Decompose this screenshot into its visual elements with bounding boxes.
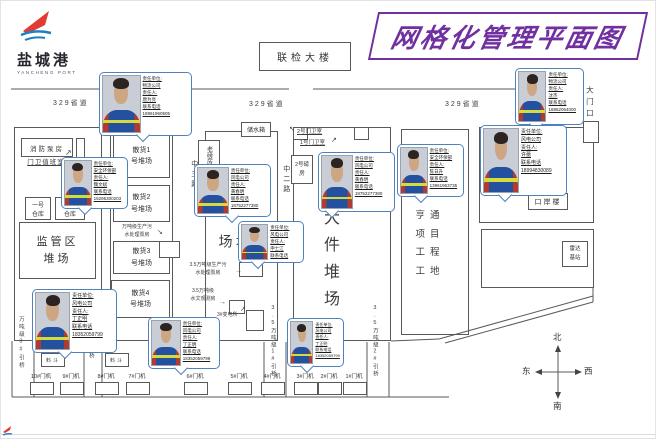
unit-label: 责任单位: xyxy=(231,168,266,175)
arrow-to-post-icon: ↗ xyxy=(65,149,72,157)
phone-label: 联系电话 xyxy=(430,176,459,183)
road-label-329-right: 329省道 xyxy=(445,101,481,110)
crane-5-label: 5#门机 xyxy=(230,372,247,380)
unit-value: 风电公司 xyxy=(270,232,299,239)
pump10k-line2: 水处理泵房 xyxy=(111,232,163,240)
crane-7-label: 7#门机 xyxy=(128,372,145,380)
pump-house-10k-structure xyxy=(159,241,180,258)
regulatory-yard-line2: 堆场 xyxy=(44,251,72,268)
crane-9-box xyxy=(60,382,84,395)
bulk-yard-2-line2: 号堆场 xyxy=(131,204,152,215)
person-value: 丁正明 xyxy=(183,342,215,349)
pump-house-10k-label: 万吨级生产污 水处理泵房 xyxy=(111,224,163,239)
person-label: 责任人: xyxy=(548,86,579,93)
staff-photo xyxy=(400,147,428,194)
card-safety-wei: 责任单位: 安全环保部 责任人: 魏文斌 联系电话 15295300203 xyxy=(61,157,128,209)
unit-label: 责任单位: xyxy=(143,76,187,83)
phone-label: 联系电话 xyxy=(231,196,266,203)
person-label: 责任人: xyxy=(183,335,215,342)
phone-value: 13961963735 xyxy=(430,183,459,190)
bridge-2right-label: 3.5万吨级2#引桥 xyxy=(371,302,378,380)
card-text: 责任单位: 风电公司 责任人: 丁正明 联系电话 18352059799 xyxy=(181,320,217,366)
substation-label: 3#变电所 xyxy=(217,312,238,318)
staff-photo xyxy=(64,160,92,206)
crane-3-label: 3#门机 xyxy=(296,372,313,380)
bulk-yard-1-line2: 号堆场 xyxy=(131,156,152,167)
unit-label: 责任单位: xyxy=(430,148,459,155)
card-wind-ding-1: 责任单位: 风电公司 责任人: 丁正明 联系电话 18352059799 xyxy=(32,289,117,353)
card-text: 责任单位: 风电公司 责任人: 黄春明 联系电话 18752277380 xyxy=(353,155,392,209)
phone-label: 联系电话 xyxy=(94,189,123,196)
unit-value: 风电公司 xyxy=(355,163,390,170)
warehouse-1-line1: 一号 xyxy=(32,200,44,209)
compass-west: 西 xyxy=(584,365,593,377)
regulatory-yard: 监管区 堆场 xyxy=(19,222,96,279)
regulatory-yard-line1: 监管区 xyxy=(37,234,79,251)
bulk-yard-4-line1: 散货4 xyxy=(132,288,150,299)
bulk-yard-3-line1: 散货3 xyxy=(133,246,151,257)
card-text: 责任单位: 物流公司 责任人: 唐为亮 联系电话 18961960505 xyxy=(141,75,189,133)
phone-value: 18961960505 xyxy=(143,111,187,118)
phone-value: 18862064000 xyxy=(548,107,579,114)
hengtong-label: 亨通 项目 工程 工地 xyxy=(409,207,451,281)
unit-label: 责任单位: xyxy=(548,72,579,79)
hydrology-line2: 水文观测房 xyxy=(185,296,221,304)
card-text: 责任单位: 安全环保部 责任人: 陈日升 联系电话 13961963735 xyxy=(428,147,461,194)
hydrology-line1: 3.5万吨级 xyxy=(185,288,221,296)
compass-east: 东 xyxy=(522,365,531,377)
arrow-guard2-icon: ↖ xyxy=(289,126,295,133)
staff-photo xyxy=(518,71,546,122)
person-value: 许蕾 xyxy=(521,152,562,160)
unit-value: 风电公司 xyxy=(72,301,112,309)
unit-value: 安全环保部 xyxy=(94,168,123,175)
phone-value: 18352059799 xyxy=(72,332,112,340)
warehouse-2-line2: 仓库 xyxy=(64,209,76,218)
staff-photo xyxy=(290,321,313,364)
arrow-pump10k-icon: ↘ xyxy=(157,229,163,236)
water-tank: 储水箱 xyxy=(241,122,271,137)
staff-photo xyxy=(321,155,353,209)
joint-inspection-building: 联检大楼 xyxy=(259,42,351,71)
phone-value: 18752277380 xyxy=(231,203,266,210)
card-text: 责任单位: 风电公司 责任人: 丁正明 联系电话 18352059799 xyxy=(70,292,114,350)
crane-2-label: 2#门机 xyxy=(320,372,337,380)
arrow-hydrology-icon: → xyxy=(219,299,226,306)
page-divider xyxy=(1,434,656,435)
crane-8-box xyxy=(95,382,119,395)
card-text: 责任单位: 物流公司 责任人: 沈杰 联系电话 18862064000 xyxy=(546,71,581,122)
card-wind-ding-2: 责任单位: 风电公司 责任人: 丁正明 联系电话 18352059799 xyxy=(148,317,220,369)
person-value: 沈杰 xyxy=(548,93,579,100)
crane-10-box xyxy=(30,382,54,395)
unit-label: 责任单位: xyxy=(183,321,215,328)
phone-label: 联系电话 xyxy=(143,104,187,111)
phone-label: 联系电话 xyxy=(270,253,299,260)
person-label: 责任人: xyxy=(231,182,266,189)
map-title-box: 网格化管理平面图 xyxy=(368,12,648,60)
card-wind-huang-left: 责任单位: 风电公司 责任人: 黄春明 联系电话 18752277380 xyxy=(194,164,271,217)
person-value: 陈日升 xyxy=(430,169,459,176)
port-logo-icon xyxy=(17,9,61,43)
unit-value: 物流公司 xyxy=(548,79,579,86)
unit-value: 安全环保部 xyxy=(430,155,459,162)
crane-10-label: 10#门机 xyxy=(31,372,51,380)
unit-label: 责任单位: xyxy=(521,129,562,137)
road-label-329-center: 329省道 xyxy=(249,101,285,110)
unit-value: 物流公司 xyxy=(143,83,187,90)
card-logistics-tang: 责任单位: 物流公司 责任人: 唐为亮 联系电话 18961960505 xyxy=(99,72,192,136)
unit-value: 风电公司 xyxy=(183,328,215,335)
guard-room-1-label: 1号门卫室 xyxy=(300,140,325,147)
crane-4-box xyxy=(261,382,285,395)
mini-logo-icon xyxy=(2,425,14,439)
compass-south: 南 xyxy=(553,400,562,412)
main-gate-label: 大门口 xyxy=(585,81,594,125)
card-text: 责任单位: 风电公司 责任人: 申士江 联系电话 15358295533 xyxy=(268,224,301,260)
logo-name: 盐城港 xyxy=(17,49,87,70)
phone-label: 联系电话 xyxy=(521,160,562,168)
staff-photo xyxy=(35,292,70,350)
crane-2-box xyxy=(318,382,342,395)
port-logo: 盐城港 YANCHENG PORT xyxy=(17,9,87,75)
hengtong-line2: 项目 xyxy=(409,226,451,245)
phone-value: 18994830089 xyxy=(521,168,562,176)
phone-label: 联系电话 xyxy=(72,324,112,332)
card-wind-xu: 责任单位: 风电公司 责任人: 许蕾 联系电话 18994830089 xyxy=(480,125,567,196)
unit-value: 风电公司 xyxy=(231,175,266,182)
crane-6-label: 6#门机 xyxy=(186,372,203,380)
bulk-yard-4: 散货4 号堆场 xyxy=(111,280,170,318)
card-wind-shen: 责任单位: 风电公司 责任人: 申士江 联系电话 15358295533 xyxy=(238,221,304,263)
staff-photo xyxy=(241,224,268,260)
road-mid2-label: 中二路 xyxy=(281,162,290,198)
person-value: 魏文斌 xyxy=(94,182,123,189)
staff-photo xyxy=(151,320,181,366)
person-value: 唐为亮 xyxy=(143,97,187,104)
arrow-guard1-icon: ↗ xyxy=(331,137,337,144)
person-label: 责任人: xyxy=(94,175,123,182)
staff-photo xyxy=(197,167,229,214)
crane-8-label: 8#门机 xyxy=(97,372,114,380)
pump35k-line2: 水处理泵房 xyxy=(177,270,239,278)
pump-house-35k-label: 3.5万吨级生产污 水处理泵房 xyxy=(177,262,239,277)
person-label: 责任人: xyxy=(355,170,390,177)
large-yard-label: 大件堆场 xyxy=(319,204,339,322)
radar-base-station: 雷达 基站 xyxy=(562,241,588,267)
person-value: 黄春明 xyxy=(355,177,390,184)
hengtong-line4: 工地 xyxy=(409,263,451,282)
bridge-1-label: 3.5万吨级1#引桥 xyxy=(269,302,276,380)
card-text: 责任单位: 风电公司 责任人: 黄春明 联系电话 18752277380 xyxy=(229,167,268,214)
radar-line1: 雷达 xyxy=(569,245,580,254)
small-post xyxy=(76,138,85,158)
unit-value: 风电公司 xyxy=(521,137,562,145)
bulk-yard-4-line2: 号堆场 xyxy=(130,299,151,310)
bulk-yard-3-line2: 号堆场 xyxy=(131,258,152,269)
person-value: 丁正明 xyxy=(72,316,112,324)
phone-label: 联系电话 xyxy=(183,349,215,356)
guard-room-2-label: 2号门卫室 xyxy=(297,129,322,136)
guard-room-1-structure xyxy=(354,127,369,140)
substation-structure xyxy=(246,310,264,331)
card-text: 责任单位: 安全环保部 责任人: 魏文斌 联系电话 15295300203 xyxy=(92,160,125,206)
person-label: 责任人: xyxy=(143,90,187,97)
person-label: 责任人: xyxy=(72,309,112,317)
bulk-yard-1-line1: 散货1 xyxy=(133,145,151,156)
bulk-yard-2-line1: 散货2 xyxy=(133,192,151,203)
phone-value: 18752277380 xyxy=(355,191,390,198)
card-text: 责任单位: 风电公司 责任人: 丁正明 联系电话 18352059799 xyxy=(313,321,341,364)
warehouse-1: 一号 仓库 xyxy=(25,197,51,220)
hengtong-line3: 工程 xyxy=(409,244,451,263)
phone-label: 联系电话 xyxy=(548,100,579,107)
pump10k-line1: 万吨级生产污 xyxy=(111,224,163,232)
card-logistics-shen: 责任单位: 物流公司 责任人: 沈杰 联系电话 18862064000 xyxy=(515,68,584,125)
plan-map: 盐城港 YANCHENG PORT 网格化管理平面图 联检大楼 329省道 32… xyxy=(0,0,656,439)
map-title: 网格化管理平面图 xyxy=(388,18,628,55)
compass-north: 北 xyxy=(553,331,562,343)
crane-1-box xyxy=(343,382,367,395)
card-safety-chen: 责任单位: 安全环保部 责任人: 陈日升 联系电话 13961963735 xyxy=(397,144,464,197)
warehouse-1-line2: 仓库 xyxy=(32,209,44,218)
person-value: 黄春明 xyxy=(231,189,266,196)
crane-7-box xyxy=(126,382,150,395)
crane-5-box xyxy=(228,382,252,395)
phone-label: 联系电话 xyxy=(355,184,390,191)
hopper-right: 料斗 xyxy=(105,353,129,367)
card-text: 责任单位: 风电公司 责任人: 许蕾 联系电话 18994830089 xyxy=(519,128,564,193)
unit-label: 责任单位: xyxy=(270,225,299,232)
staff-photo xyxy=(102,75,141,133)
person-value: 申士江 xyxy=(270,246,299,253)
phone-value: 15295300203 xyxy=(94,196,123,203)
card-wind-ding-3: 责任单位: 风电公司 责任人: 丁正明 联系电话 18352059799 xyxy=(287,318,344,367)
bridge-3-label: 万吨级3#引桥 xyxy=(17,301,24,385)
logo-subtitle: YANCHENG PORT xyxy=(17,70,87,75)
person-label: 责任人: xyxy=(430,162,459,169)
unit-label: 责任单位: xyxy=(72,293,112,301)
arrow-substation-icon: ↗ xyxy=(240,306,246,313)
pump35k-line1: 3.5万吨级生产污 xyxy=(177,262,239,270)
staff-photo xyxy=(483,128,519,193)
unit-label: 责任单位: xyxy=(355,156,390,163)
weighbridge-2: 2号磅房 xyxy=(291,155,313,184)
crane-3-box xyxy=(294,382,318,395)
crane-4-label: 4#门机 xyxy=(263,372,280,380)
radar-line2: 基站 xyxy=(569,254,580,263)
unit-label: 责任单位: xyxy=(94,161,123,168)
phone-value: 18352059799 xyxy=(183,356,215,363)
hengtong-line1: 亨通 xyxy=(409,207,451,226)
crane-9-label: 9#门机 xyxy=(62,372,79,380)
person-label: 责任人: xyxy=(270,239,299,246)
hydrology-room-label: 3.5万吨级 水文观测房 xyxy=(185,288,221,303)
card-wind-huang-right: 责任单位: 风电公司 责任人: 黄春明 联系电话 18752277380 xyxy=(318,152,395,212)
arrow-pump35k-icon: → xyxy=(235,268,242,275)
crane-6-box xyxy=(184,382,208,395)
road-label-329-left: 329省道 xyxy=(53,100,89,109)
crane-1-label: 1#门机 xyxy=(345,372,362,380)
phone-value: 18352059799 xyxy=(315,353,339,359)
